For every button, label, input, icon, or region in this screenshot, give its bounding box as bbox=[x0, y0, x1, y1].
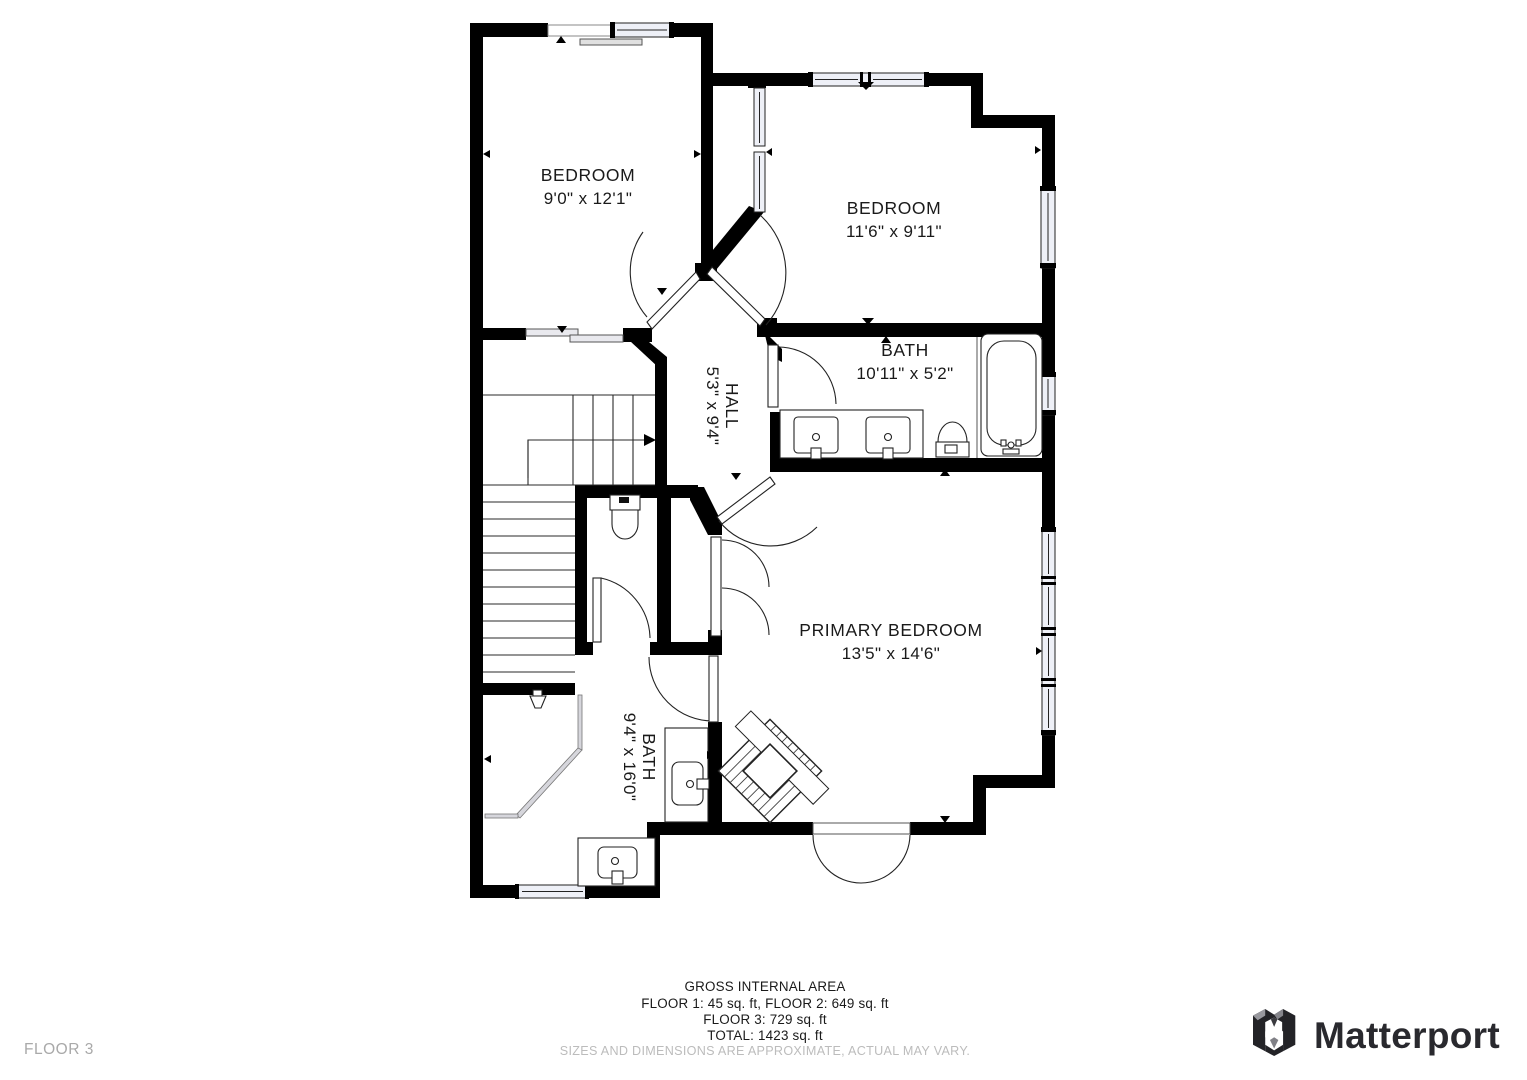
room-name: BEDROOM bbox=[541, 165, 636, 185]
floor-1-2-area: FLOOR 1: 45 sq. ft, FLOOR 2: 649 sq. ft bbox=[641, 996, 889, 1011]
shelf bbox=[580, 39, 642, 45]
room-name: BEDROOM bbox=[847, 198, 942, 218]
gross-internal-area-title: GROSS INTERNAL AREA bbox=[684, 979, 845, 994]
footer-area-summary: GROSS INTERNAL AREA FLOOR 1: 45 sq. ft, … bbox=[560, 979, 970, 1058]
room-label-bedroom1: BEDROOM 9'0" x 12'1" bbox=[541, 165, 636, 208]
door-primary-hall bbox=[717, 477, 817, 546]
door-bedroom1 bbox=[630, 232, 700, 329]
room-label-bath2: BATH 9'4" x 16'0" bbox=[620, 713, 659, 802]
window-bedroom2-right bbox=[1040, 186, 1056, 268]
fireplace bbox=[705, 706, 834, 835]
double-vanity bbox=[780, 410, 923, 459]
floor-3-area: FLOOR 3: 729 sq. ft bbox=[703, 1012, 827, 1027]
floor-plan-svg: BEDROOM 9'0" x 12'1" BEDROOM 11'6" x 9'1… bbox=[0, 0, 1527, 1080]
window-bedroom1-top bbox=[610, 22, 674, 38]
door-bath1 bbox=[768, 345, 836, 407]
room-dims: 9'4" x 16'0" bbox=[620, 713, 639, 802]
vanity-sink bbox=[578, 838, 655, 886]
double-door-opening bbox=[813, 823, 910, 834]
wall-opening bbox=[548, 25, 612, 36]
shower-head-icon bbox=[533, 690, 542, 696]
matterport-logo: Matterport bbox=[1253, 1009, 1500, 1056]
room-dims: 9'0" x 12'1" bbox=[544, 189, 633, 208]
room-label-primary: PRIMARY BEDROOM 13'5" x 14'6" bbox=[799, 620, 982, 663]
toilet bbox=[610, 495, 640, 539]
room-dims: 11'6" x 9'11" bbox=[846, 222, 942, 241]
room-dims: 13'5" x 14'6" bbox=[842, 644, 940, 663]
room-name: PRIMARY BEDROOM bbox=[799, 620, 982, 640]
toilet bbox=[936, 422, 969, 457]
stairs-direction-line bbox=[528, 440, 644, 478]
room-dims: 5'3" x 9'4" bbox=[703, 367, 722, 446]
bathtub bbox=[981, 334, 1042, 456]
total-area: TOTAL: 1423 sq. ft bbox=[707, 1028, 823, 1043]
room-name: BATH bbox=[881, 340, 929, 360]
matterport-logo-icon bbox=[1253, 1009, 1295, 1056]
vanity-sink bbox=[665, 728, 709, 822]
double-door-primary bbox=[813, 835, 910, 883]
door-toilet-room bbox=[593, 578, 650, 642]
floor-label: FLOOR 3 bbox=[24, 1041, 94, 1058]
glass-wall-bedroom2-left bbox=[754, 88, 765, 212]
brand-name: Matterport bbox=[1314, 1015, 1500, 1056]
room-name: BATH bbox=[639, 733, 659, 781]
window-primary-right bbox=[1041, 527, 1056, 735]
room-dims: 10'11" x 5'2" bbox=[856, 364, 953, 383]
stairs-direction-arrow-icon bbox=[644, 434, 656, 446]
door-primary-closet bbox=[711, 537, 769, 636]
room-label-bedroom2: BEDROOM 11'6" x 9'11" bbox=[846, 198, 942, 241]
disclaimer: SIZES AND DIMENSIONS ARE APPROXIMATE, AC… bbox=[560, 1044, 970, 1058]
door-primary-bath2 bbox=[649, 656, 718, 722]
sliding-closet-door bbox=[526, 329, 623, 342]
room-label-hall: HALL 5'3" x 9'4" bbox=[703, 367, 742, 446]
room-label-bath1: BATH 10'11" x 5'2" bbox=[856, 340, 953, 383]
shower bbox=[485, 690, 582, 818]
floor-plan-page: BEDROOM 9'0" x 12'1" BEDROOM 11'6" x 9'1… bbox=[0, 0, 1527, 1080]
room-name: HALL bbox=[722, 383, 742, 429]
